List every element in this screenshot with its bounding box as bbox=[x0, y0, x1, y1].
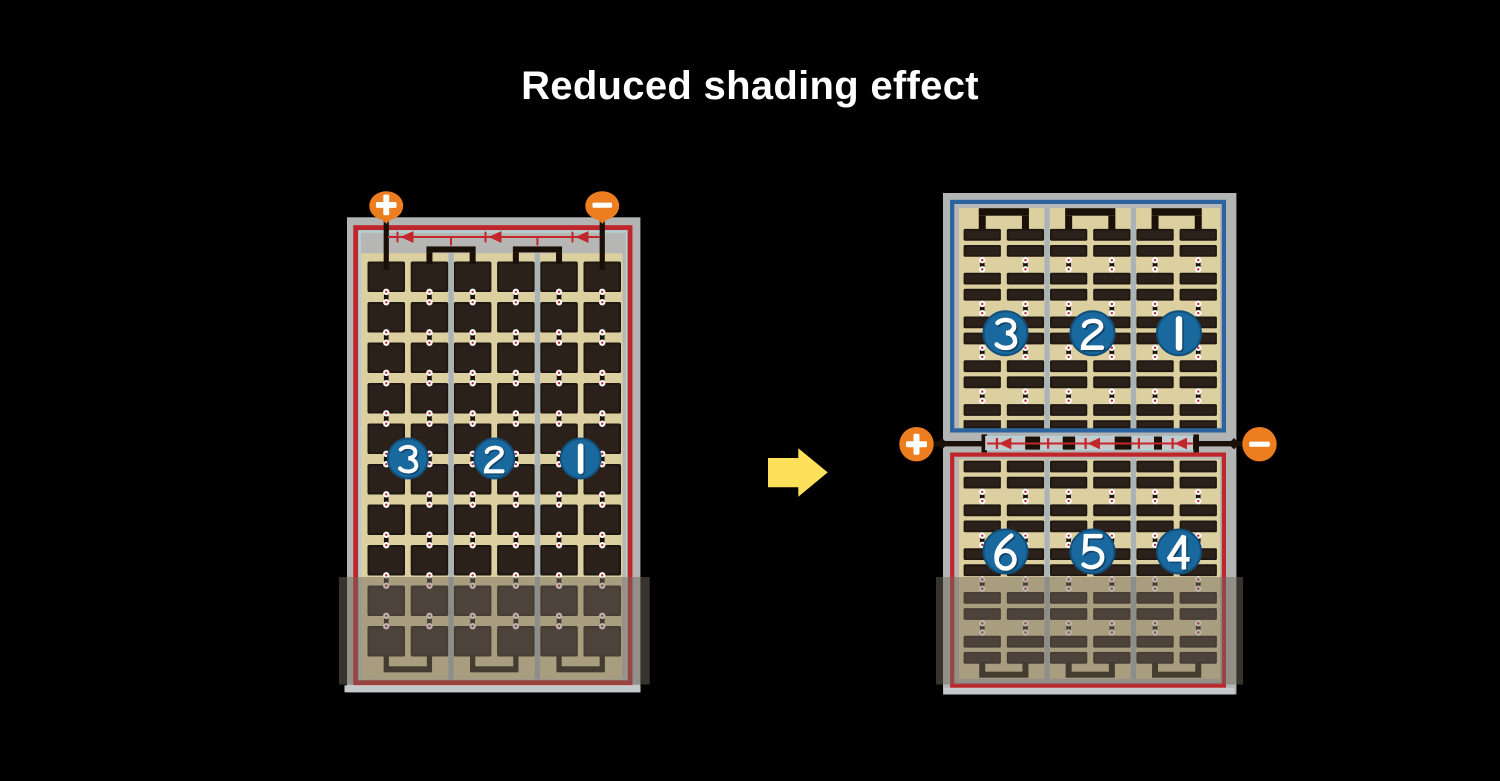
svg-text:Reduced shading effect: Reduced shading effect bbox=[521, 64, 979, 108]
